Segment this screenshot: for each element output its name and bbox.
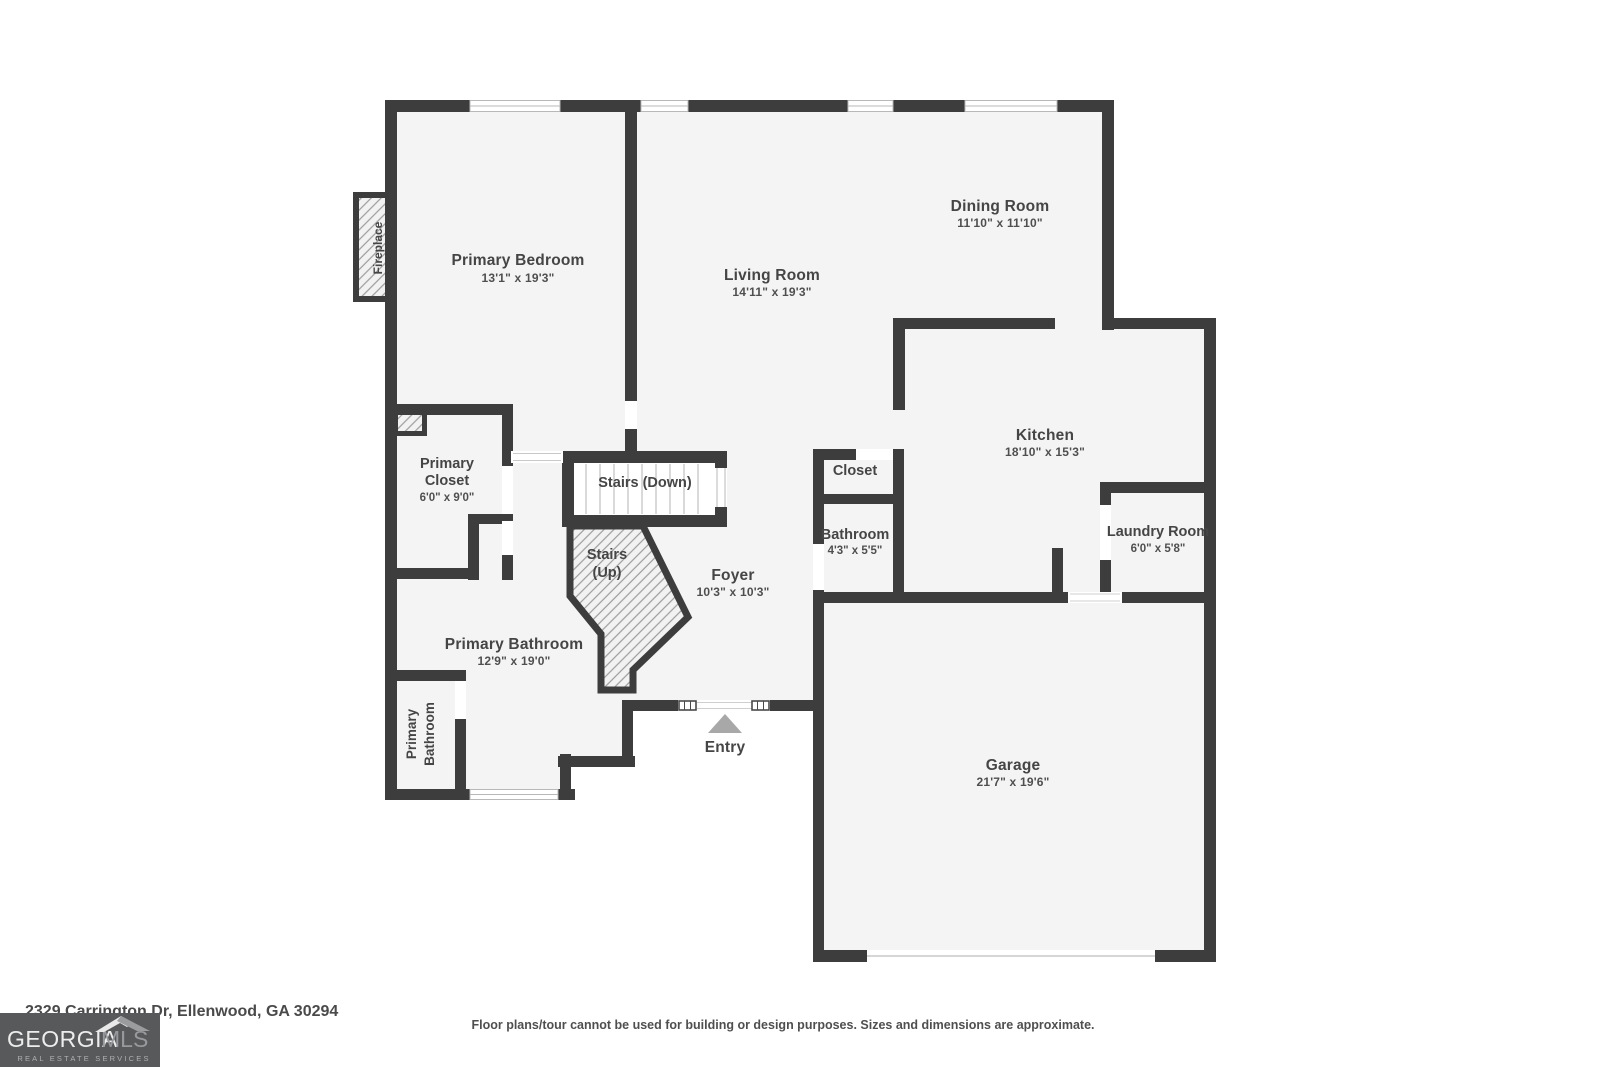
room-name: Kitchen [1016, 427, 1074, 444]
window-icon [470, 790, 558, 800]
stairs-down-label: Stairs (Down) [598, 475, 692, 491]
room-name: Foyer [711, 567, 754, 584]
door-opening [856, 449, 893, 460]
primary-closet-label: Primary Closet 6'0" x 9'0" [420, 456, 475, 504]
door-opening [502, 466, 513, 514]
room-name: Garage [986, 757, 1041, 774]
garage-label: Garage 21'7" x 19'6" [976, 757, 1049, 789]
room-name: Primary [404, 708, 419, 759]
room-name: Closet [425, 473, 469, 489]
room-floor-fills [391, 106, 1214, 954]
room-dims: 14'11" x 19'3" [732, 285, 811, 299]
room-dims: 21'7" x 19'6" [976, 775, 1049, 789]
door-opening [455, 681, 466, 719]
room-name: Bathroom [821, 527, 889, 543]
room-name: Laundry Room [1107, 524, 1209, 540]
door-opening [625, 401, 637, 429]
room-name: Entry [705, 739, 746, 756]
room-name: Closet [833, 463, 877, 479]
room-dims: 11'10" x 11'10" [957, 216, 1043, 230]
floor-plan-page: Primary Bedroom 13'1" x 19'3" Living Roo… [0, 0, 1600, 1067]
door-opening [1068, 592, 1122, 603]
georgia-mls-logo: GEORGIA MLS REAL ESTATE SERVICES [0, 1013, 160, 1067]
room-dims: 18'10" x 15'3" [1005, 445, 1085, 459]
disclaimer-text: Floor plans/tour cannot be used for buil… [471, 1018, 1094, 1032]
window-icon [470, 101, 560, 112]
room-name: Dining Room [951, 198, 1050, 215]
garage-door-opening [867, 950, 1155, 962]
room-name: Primary [420, 456, 474, 472]
logo-tagline: REAL ESTATE SERVICES [17, 1054, 150, 1063]
room-name: Fireplace [371, 221, 385, 274]
room-dims: 6'0" x 5'8" [1131, 543, 1186, 555]
room-dims: 4'3" x 5'5" [828, 545, 883, 557]
entry-arrow-icon [708, 714, 742, 733]
room-dims: 13'1" x 19'3" [481, 271, 554, 285]
dining-room-label: Dining Room 11'10" x 11'10" [951, 198, 1050, 230]
room-name: Stairs (Down) [598, 475, 692, 491]
room-dims: 6'0" x 9'0" [420, 492, 475, 504]
closet-label: Closet [833, 463, 877, 479]
room-name: Living Room [724, 267, 820, 284]
entry-door [678, 700, 770, 711]
window-icon [848, 101, 893, 112]
window-icon [641, 101, 688, 112]
door-opening [511, 451, 563, 463]
fireplace-label: Fireplace [371, 221, 385, 274]
floor-plan-drawing: Primary Bedroom 13'1" x 19'3" Living Roo… [0, 0, 1600, 1067]
kitchen-label: Kitchen 18'10" x 15'3" [1005, 427, 1085, 459]
room-name: Bathroom [422, 702, 437, 766]
room-name: Primary Bedroom [451, 252, 584, 269]
window-icon [965, 101, 1057, 112]
room-name: Stairs [587, 547, 627, 563]
room-dims: 12'9" x 19'0" [477, 654, 550, 668]
room-dims: 10'3" x 10'3" [696, 585, 769, 599]
entry-label: Entry [705, 739, 746, 756]
door-opening [502, 521, 513, 555]
bathroom-label: Bathroom 4'3" x 5'5" [821, 527, 889, 557]
room-name: Primary Bathroom [445, 636, 583, 653]
room-name: (Up) [593, 565, 622, 581]
living-room-label: Living Room 14'11" x 19'3" [724, 267, 820, 299]
door-opening [813, 544, 824, 590]
door-opening [715, 468, 727, 507]
